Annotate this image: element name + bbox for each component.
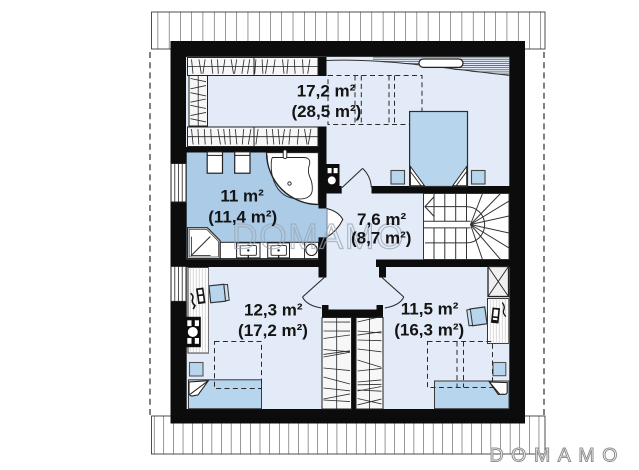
svg-text:11 m²: 11 m² (220, 187, 264, 206)
svg-text:7,6 m²: 7,6 m² (357, 210, 406, 229)
svg-text:(16,3 m²): (16,3 m²) (394, 321, 464, 340)
svg-text:(17,2 m²): (17,2 m²) (238, 321, 308, 340)
svg-text:12,3 m²: 12,3 m² (244, 300, 303, 319)
svg-text:(28,5 m²): (28,5 m²) (291, 102, 361, 121)
svg-text:17,2 m²: 17,2 m² (297, 82, 356, 101)
svg-text:DOMAMO: DOMAMO (490, 444, 626, 466)
svg-text:(8,7 m²): (8,7 m²) (351, 229, 411, 248)
svg-text:(11,4 m²): (11,4 m²) (208, 207, 277, 226)
svg-text:11,5 m²: 11,5 m² (401, 299, 459, 318)
